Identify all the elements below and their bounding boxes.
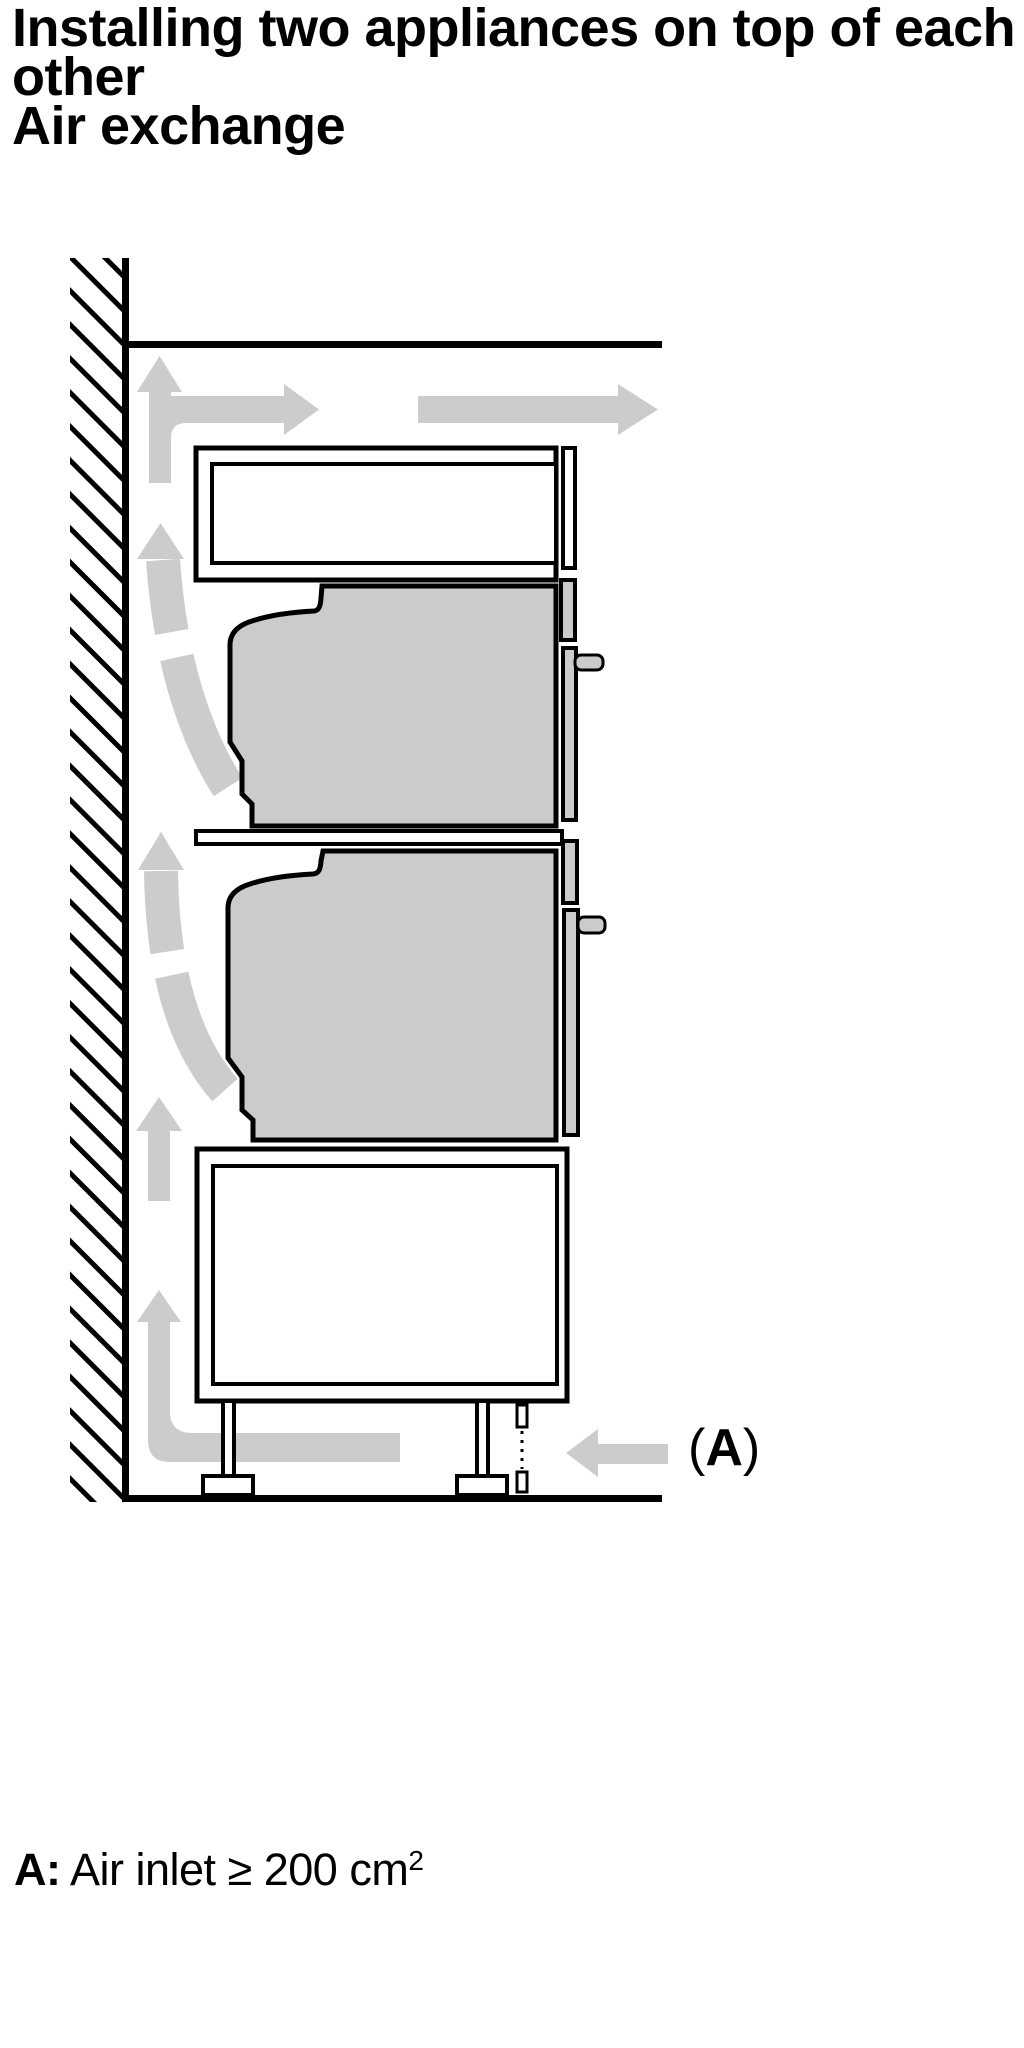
airflow-curved-arrow-lower [161,871,225,1090]
airflow-up-arrow-bottom [136,1097,182,1201]
air-inlet-label-close-paren: ) [743,1419,760,1477]
upper-cabinet-front-trim [563,448,575,568]
cabinet-foot-right [457,1476,507,1495]
wall-line [122,258,129,1502]
lower-appliance-body [228,851,556,1140]
lower-appliance-door [564,910,578,1135]
upper-appliance-door [563,648,576,820]
air-inlet-arrow [566,1429,668,1477]
airflow-curved-arrow-upper-head [137,523,184,559]
airflow-right-arrow [418,384,658,435]
air-inlet-label-letter: A [705,1419,743,1477]
upper-appliance-body [230,586,556,826]
air-inlet-label-open-paren: ( [688,1419,705,1477]
air-inlet-gap-marker-bottom [517,1472,527,1492]
caption-key: A: [14,1844,60,1895]
upper-cabinet-inner-frame [212,464,556,563]
lower-appliance-control-panel [563,841,577,903]
figure-caption: A: Air inlet ≥ 200 cm2 [14,1836,423,1895]
upper-appliance-handle [575,655,603,670]
caption-superscript: 2 [408,1845,423,1876]
manual-page: Installing two appliances on top of each… [0,0,1024,2048]
ceiling-line [122,341,662,348]
air-inlet-label: (A) [688,1420,760,1476]
air-inlet-gap-marker-top [517,1405,527,1427]
cabinet-leg-left [223,1401,234,1477]
airflow-floor-l-arrow-head [137,1290,181,1322]
airflow-curved-arrow-lower-head [138,832,184,870]
wall-hatching [70,258,122,1502]
cabinet-leg-right [477,1401,488,1477]
base-cabinet-inner-frame [213,1166,557,1384]
upper-appliance-control-panel [561,580,575,640]
caption-text: Air inlet ≥ 200 cm [60,1844,408,1895]
lower-appliance-handle [578,917,605,933]
installation-diagram [0,0,1024,2048]
middle-shelf [196,831,562,844]
airflow-curved-arrow-upper [163,560,228,787]
cabinet-foot-left [203,1476,253,1495]
